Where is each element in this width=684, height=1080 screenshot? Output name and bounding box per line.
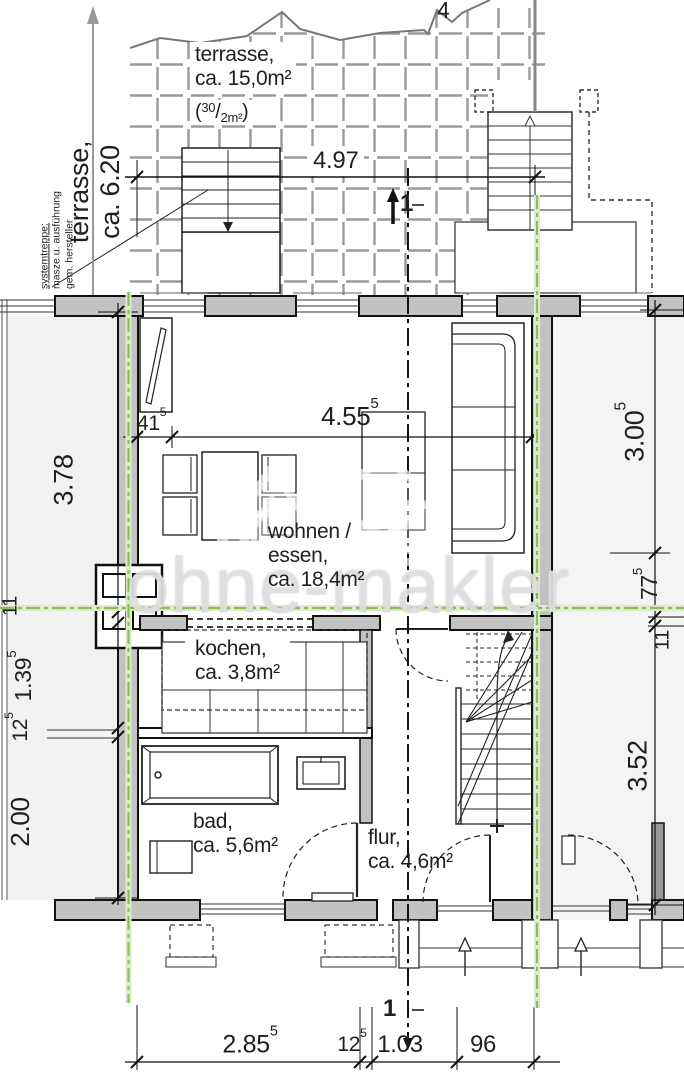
room-label-flur: flur, ca. 4,6m² xyxy=(368,826,453,874)
dim-bottom-2: 125 xyxy=(337,1033,366,1057)
dim-bottom-4: 96 xyxy=(470,1031,496,1059)
room-label-bad: bad, ca. 5,6m² xyxy=(193,810,278,858)
dim-right-1: 3.005 xyxy=(619,402,650,462)
break-line-label: 4 xyxy=(437,0,450,23)
dim-left-2: 11 xyxy=(0,596,23,616)
terrasse-density-fraction: (30/2m²) xyxy=(190,100,253,125)
room-label-terrasse: terrasse, ca. 15,0m² xyxy=(190,42,296,92)
entrance-area xyxy=(166,920,684,976)
dim-left-1: 3.78 xyxy=(48,454,79,505)
section-marker-top: 1 xyxy=(400,190,413,218)
floor-plan: ohne-makler terrasse, ca. 6.20 systemtre… xyxy=(0,0,684,1080)
interior-stair xyxy=(456,630,532,833)
dim-right-2: 775 xyxy=(636,568,662,600)
room-label-wohnen: wohnen / essen, ca. 18,4m² xyxy=(268,520,364,592)
section-marker-bottom: 1 xyxy=(383,995,396,1023)
room-label-kochen: kochen, ca. 3,8m² xyxy=(185,633,290,689)
dim-right-3: 11 xyxy=(652,630,675,650)
dim-right-4: 3.52 xyxy=(622,740,653,791)
dim-bottom-1: 2.855 xyxy=(222,1031,277,1060)
dim-left-5: 2.00 xyxy=(6,797,36,846)
dim-left-4: 125 xyxy=(9,712,33,741)
living-furniture xyxy=(140,318,524,553)
stair-note: systemtreppe: masze u. ausführung gem. h… xyxy=(38,191,75,289)
dim-left-3: 1.395 xyxy=(10,651,36,702)
dim-niche: 415 xyxy=(137,412,166,436)
dim-bottom-3: 1.03 xyxy=(377,1031,423,1059)
dim-terrace-width: 4.97 xyxy=(308,146,364,176)
dim-living-width: 4.555 xyxy=(321,402,379,432)
